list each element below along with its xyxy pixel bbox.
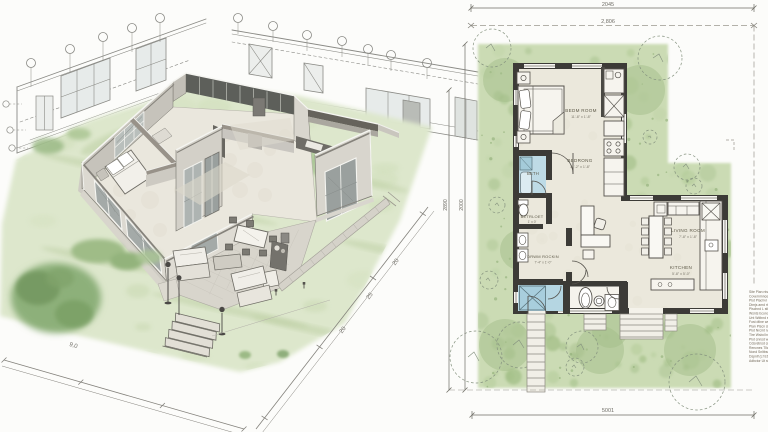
svg-text:2,806: 2,806 (601, 19, 615, 25)
svg-text:BEDM ROOM: BEDM ROOM (565, 108, 597, 113)
svg-text:DRWM ROCKIN: DRWM ROCKIN (527, 254, 559, 259)
svg-text:2000: 2000 (459, 199, 465, 211)
svg-text:BETRLOET: BETRLOET (521, 214, 544, 219)
svg-text:BEDRONG: BEDRONG (567, 158, 592, 163)
svg-text:7'-8" x 1'-8": 7'-8" x 1'-8" (679, 235, 698, 239)
svg-text:1' x 0': 1' x 0' (528, 220, 537, 224)
svg-text:5001: 5001 (602, 408, 614, 414)
svg-text:LIVING ROOM: LIVING ROOM (671, 228, 705, 233)
svg-text:Adbctor Ut stn: Adbctor Ut stn (749, 359, 768, 363)
svg-text:7'-4" x 1'-0": 7'-4" x 1'-0" (534, 261, 552, 265)
svg-text:KITCHEN: KITCHEN (670, 265, 692, 270)
svg-text:5'-8" x 5'-0": 5'-8" x 5'-0" (672, 272, 691, 276)
svg-text:14'-2" x 1'-8": 14'-2" x 1'-8" (570, 165, 591, 169)
svg-text:2045: 2045 (602, 2, 614, 8)
svg-text:11'-8" x 1'-8": 11'-8" x 1'-8" (571, 115, 592, 119)
svg-text:2890: 2890 (443, 199, 449, 211)
svg-text:BETH: BETH (527, 171, 539, 176)
